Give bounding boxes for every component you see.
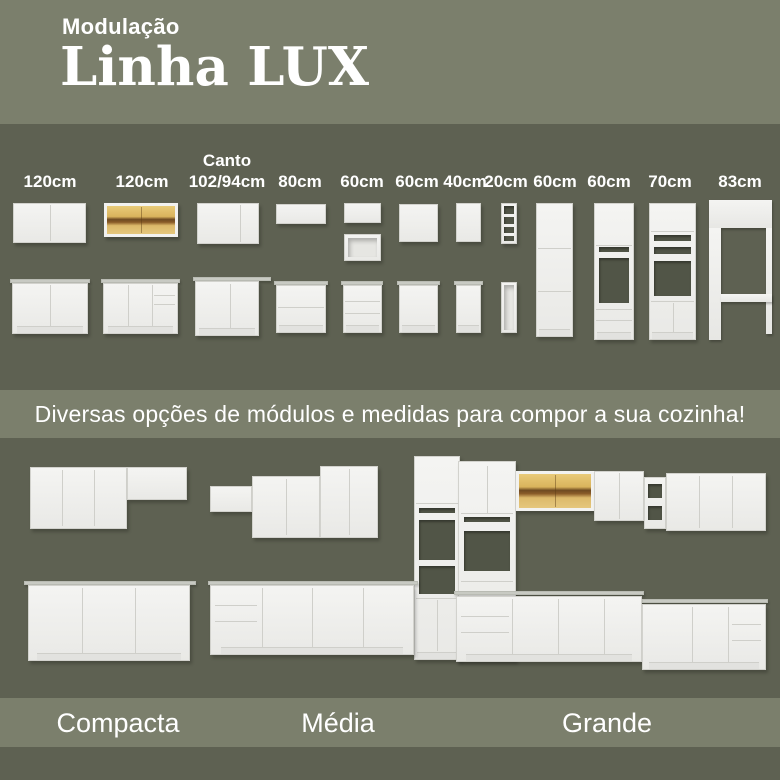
base-cabinet-60-door xyxy=(399,285,438,333)
corner-wall-cabinet xyxy=(197,203,259,244)
tall-shelf-tower-70 xyxy=(649,203,696,340)
base-cabinet-120 xyxy=(12,283,88,334)
module-size-label: 60cm xyxy=(340,171,383,192)
open-wall-niche-60 xyxy=(344,234,381,261)
kitchen-label-media: Média xyxy=(301,708,375,739)
header-band: Modulação Linha LUX xyxy=(0,0,780,124)
wall-cabinet-40 xyxy=(456,203,481,242)
wall-cabinet-60 xyxy=(344,203,381,223)
kitchen-grande-illustration xyxy=(450,443,772,693)
tall-pantry-60 xyxy=(536,203,573,337)
glass-wall-cabinet-120 xyxy=(104,203,178,237)
base-cabinet-120-drawers xyxy=(103,283,178,334)
module-size-label: 80cm xyxy=(278,171,321,192)
module-size-label: 120cm xyxy=(116,171,169,192)
kitchen-media-illustration xyxy=(208,448,458,688)
module-size-label: 60cm xyxy=(533,171,576,192)
footer-strip xyxy=(0,747,780,780)
module-size-label: 83cm xyxy=(718,171,761,192)
module-size-line1: Canto xyxy=(189,150,266,171)
fridge-surround-83 xyxy=(709,200,772,340)
kitchens-section xyxy=(0,438,780,698)
open-base-20 xyxy=(501,282,517,333)
product-infographic: Modulação Linha LUX 120cm 120cm Canto 10… xyxy=(0,0,780,780)
module-size-label: Canto 102/94cm xyxy=(189,150,266,193)
tall-oven-tower-60 xyxy=(594,203,634,340)
corner-base-cabinet xyxy=(195,281,259,336)
module-size-label: 40cm xyxy=(443,171,486,192)
base-cabinet-60-drawers xyxy=(343,285,382,333)
module-size-label: 60cm xyxy=(395,171,438,192)
page-title: Linha LUX xyxy=(60,36,369,98)
modules-section: 120cm 120cm Canto 102/94cm 80cm 60cm 60c… xyxy=(0,124,780,390)
module-size-label: 120cm xyxy=(24,171,77,192)
niche-shelf-20 xyxy=(501,203,517,244)
kitchen-compacta-illustration xyxy=(22,455,202,685)
banner-text: Diversas opções de módulos e medidas par… xyxy=(35,401,746,428)
module-size-line2: 102/94cm xyxy=(189,171,266,192)
module-size-label: 60cm xyxy=(587,171,630,192)
banner-band: Diversas opções de módulos e medidas par… xyxy=(0,390,780,438)
module-size-label: 70cm xyxy=(648,171,691,192)
module-size-label: 20cm xyxy=(484,171,527,192)
base-cabinet-40 xyxy=(456,285,481,333)
kitchen-label-grande: Grande xyxy=(562,708,652,739)
wall-cabinet-120 xyxy=(13,203,86,243)
wall-cabinet-80 xyxy=(276,204,326,224)
kitchen-label-compacta: Compacta xyxy=(56,708,179,739)
wall-cabinet-60-door xyxy=(399,204,438,242)
base-cabinet-80-drawers xyxy=(276,285,326,333)
